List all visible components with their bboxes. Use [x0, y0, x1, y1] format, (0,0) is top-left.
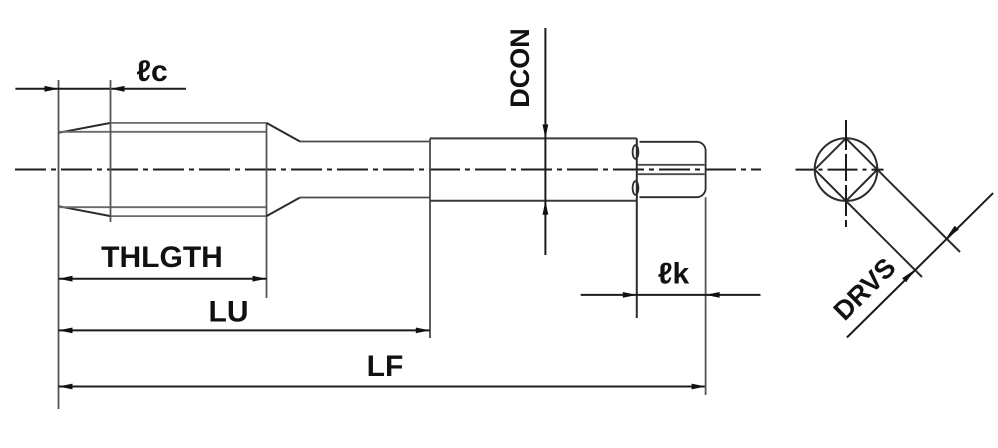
svg-text:DCON: DCON — [505, 28, 535, 108]
svg-text:DRVS: DRVS — [828, 252, 902, 326]
svg-text:LF: LF — [367, 350, 404, 383]
svg-text:THLGTH: THLGTH — [101, 241, 223, 274]
svg-text:LU: LU — [209, 296, 249, 329]
svg-text:ℓk: ℓk — [658, 258, 690, 291]
svg-text:ℓc: ℓc — [136, 55, 167, 88]
